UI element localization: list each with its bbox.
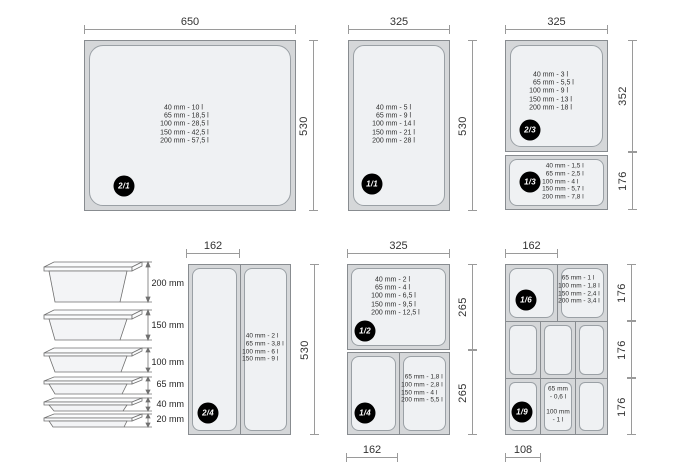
gn-1-9-pan bbox=[509, 325, 537, 375]
gn-1-9-mid-cell-1 bbox=[505, 321, 541, 379]
dim-gn14-bottom-width: 162 bbox=[346, 457, 398, 458]
pan-depth-200-icon bbox=[44, 262, 152, 302]
gn-2-1-badge: 2/1 bbox=[114, 176, 135, 197]
dim-gn19-bottom-width-value: 108 bbox=[514, 445, 532, 456]
dim-gn13-height: 176 bbox=[632, 152, 633, 210]
pan-depth-150-icon bbox=[44, 310, 152, 340]
gn-1-3-badge: 1/3 bbox=[520, 172, 541, 193]
gn-2-3-capacity-table: 40 mm - 3 l65 mm - 5,5 l100 mm - 9 l150 … bbox=[527, 71, 586, 112]
dim-gn11-width: 325 bbox=[348, 29, 450, 30]
dim-gn14-height: 265 bbox=[472, 350, 473, 435]
gn-1-6-capacity-table: 65 mm - 1 l100 mm - 1,8 l150 mm - 2,4 l2… bbox=[557, 274, 608, 305]
gn-1-2-capacity-table: 40 mm - 2 l65 mm - 4 l100 mm - 6,5 l150 … bbox=[369, 276, 428, 317]
gn-1-9-capacity-table: 65 mm- 0,6 l100 mm- 1 l bbox=[546, 386, 569, 425]
depth-label-20: 20 mm bbox=[144, 414, 184, 424]
depth-label-65: 65 mm bbox=[144, 379, 184, 389]
dim-gn12-width: 325 bbox=[347, 253, 450, 254]
gn-1-9-bottom-cell-3 bbox=[575, 378, 608, 435]
dim-gn16-height: 176 bbox=[631, 264, 632, 321]
depth-label-40: 40 mm bbox=[144, 399, 184, 409]
gn-1-2-badge: 1/2 bbox=[355, 321, 376, 342]
dim-gn21-height-value: 530 bbox=[298, 116, 310, 136]
dim-gn13-height-value: 176 bbox=[617, 171, 629, 191]
gn-1-4-capacity-table: 65 mm - 1,8 l100 mm - 2,8 l150 mm - 4 l2… bbox=[400, 373, 451, 404]
dim-gn19-bottom-height-value: 176 bbox=[616, 397, 628, 417]
pan-depth-65-icon bbox=[44, 377, 152, 394]
dim-gn23-width-value: 325 bbox=[547, 17, 565, 28]
dim-gn19-bottom-width: 108 bbox=[505, 457, 541, 458]
dim-gn14-bottom-width-value: 162 bbox=[363, 445, 381, 456]
gn-1-9-pan bbox=[579, 382, 604, 431]
dim-gn16-width-value: 162 bbox=[522, 241, 540, 252]
gn-1-9-mid-cell-3 bbox=[575, 321, 608, 379]
dim-gn16-width: 162 bbox=[505, 253, 558, 254]
gn-1-4-left-cell bbox=[347, 352, 400, 435]
dim-gn19-mid-height-value: 176 bbox=[616, 340, 628, 360]
dim-gn12-height: 265 bbox=[472, 264, 473, 350]
dim-gn23-height-value: 352 bbox=[617, 86, 629, 106]
dim-gn24-height: 530 bbox=[314, 264, 315, 435]
dim-gn14-height-value: 265 bbox=[457, 383, 469, 403]
dim-gn24-height-value: 530 bbox=[299, 340, 311, 360]
gn-2-4-badge: 2/4 bbox=[198, 403, 219, 424]
dim-gn12-width-value: 325 bbox=[389, 241, 407, 252]
depth-label-150: 150 mm bbox=[144, 320, 184, 330]
depth-label-200: 200 mm bbox=[144, 278, 184, 288]
dim-gn24-width: 162 bbox=[186, 253, 240, 254]
dim-gn23-height: 352 bbox=[632, 40, 633, 152]
dim-gn24-width-value: 162 bbox=[204, 241, 222, 252]
gn-1-4-badge: 1/4 bbox=[355, 403, 376, 424]
gn-1-1-badge: 1/1 bbox=[362, 174, 383, 195]
pan-depth-40-icon bbox=[44, 398, 152, 411]
dim-gn21-height: 530 bbox=[313, 40, 314, 211]
dim-gn19-mid-height: 176 bbox=[631, 321, 632, 378]
dim-gn23-width: 325 bbox=[505, 29, 608, 30]
dim-gn21-width-value: 650 bbox=[181, 17, 199, 28]
dim-gn11-height: 530 bbox=[472, 40, 473, 211]
gn-2-4-capacity-table: 40 mm - 2 l65 mm - 3,8 l100 mm - 6 l150 … bbox=[241, 332, 292, 363]
gn-2-3-badge: 2/3 bbox=[520, 120, 541, 141]
depth-label-100: 100 mm bbox=[144, 357, 184, 367]
dim-gn12-height-value: 265 bbox=[457, 297, 469, 317]
gn-1-9-pan bbox=[544, 325, 572, 375]
dim-gn11-width-value: 325 bbox=[390, 17, 408, 28]
dim-gn16-height-value: 176 bbox=[616, 283, 628, 303]
gn-1-6-badge: 1/6 bbox=[516, 290, 537, 311]
pan-depth-20-icon bbox=[44, 414, 152, 427]
gn-1-9-mid-cell-2 bbox=[540, 321, 576, 379]
gn-1-3-capacity-table: 40 mm - 1,5 l65 mm - 2,5 l100 mm - 4 l15… bbox=[541, 163, 592, 202]
dim-gn11-height-value: 530 bbox=[457, 116, 469, 136]
gn-1-1-capacity-table: 40 mm - 5 l65 mm - 9 l100 mm - 14 l150 m… bbox=[370, 104, 429, 145]
gn-2-1-capacity-table: 40 mm - 10 l65 mm - 18,5 l100 mm - 28,5 … bbox=[158, 104, 217, 145]
gn-1-9-pan bbox=[579, 325, 604, 375]
gn-1-9-badge: 1/9 bbox=[512, 402, 533, 423]
dim-gn21-width: 650 bbox=[84, 29, 296, 30]
dim-gn19-bottom-height: 176 bbox=[631, 378, 632, 435]
gn-sizes-diagram: 650 40 mm - 10 l65 mm - 18,5 l100 mm - 2… bbox=[0, 0, 680, 474]
pan-depth-100-icon bbox=[44, 348, 152, 372]
